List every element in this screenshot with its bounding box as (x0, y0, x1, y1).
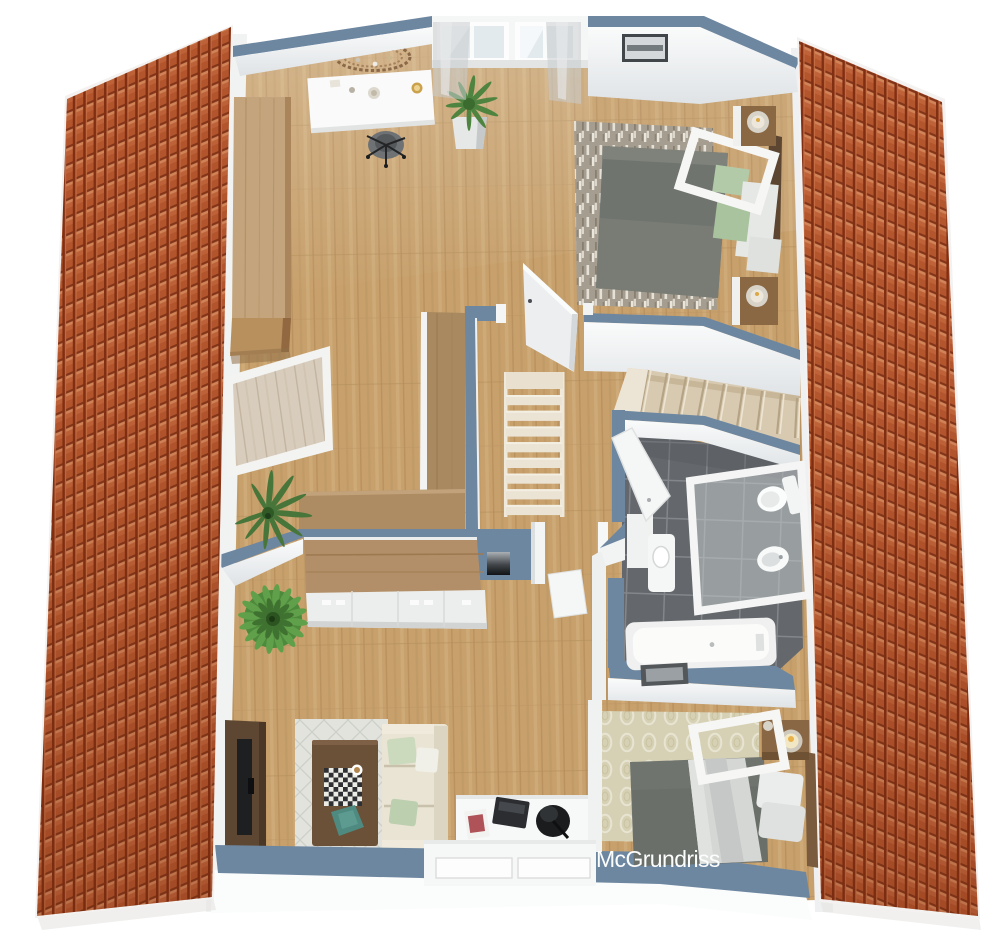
svg-text:McGrundriss: McGrundriss (596, 846, 720, 872)
